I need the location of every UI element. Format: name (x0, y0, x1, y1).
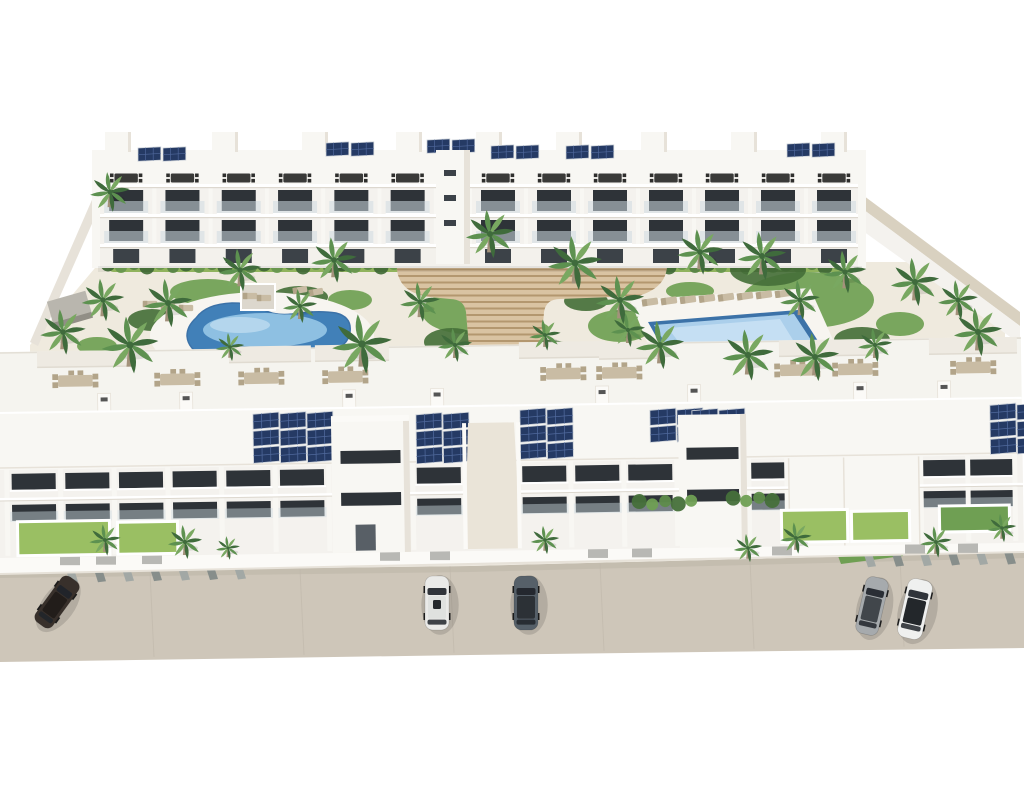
solar-panel (138, 147, 161, 161)
architectural-rendering: Aerial 3D architectural rendering of a w… (0, 0, 1024, 800)
pergola-roof (519, 341, 605, 358)
balcony-glass (160, 231, 204, 244)
rooftop-furniture-set (650, 174, 682, 183)
roof-bulkhead-shade (128, 132, 131, 152)
balcony-glass (521, 504, 569, 515)
rooftop-furniture-set (166, 174, 198, 183)
end-wall-right (858, 150, 866, 268)
roof-bulkhead-shade (664, 132, 667, 152)
balcony-glass (588, 201, 632, 214)
solar-panel (307, 445, 333, 462)
rooftop-furniture-set (482, 174, 514, 183)
roof-bulkhead-shade (419, 132, 422, 152)
roof-bulkhead (731, 132, 757, 152)
pergola-roof (229, 345, 311, 362)
end-wall-left (92, 150, 100, 268)
rooftop-furniture-set (223, 174, 255, 183)
chimney-vent (857, 386, 864, 390)
balcony-glass (812, 201, 856, 214)
balcony-glass (700, 201, 744, 214)
balcony-glass (812, 231, 856, 244)
garden-bed (876, 312, 924, 336)
balcony-glass (476, 201, 520, 214)
rooftop-furniture-set (762, 174, 794, 183)
balcony-glass (644, 201, 688, 214)
solar-panel (416, 430, 442, 447)
ground-floor-window (113, 249, 139, 263)
balcony-glass (532, 201, 576, 214)
balcony-glass (532, 231, 576, 244)
balcony-glass (217, 201, 261, 214)
stair-tower-a (331, 415, 411, 553)
balcony-glass (329, 231, 373, 244)
render-canvas (0, 0, 1024, 800)
balcony-glass (225, 508, 273, 519)
solar-panel (253, 412, 279, 429)
central-walkway (462, 422, 522, 549)
solar-panel (566, 145, 589, 159)
ground-floor-window (169, 249, 195, 263)
chimney-vent (434, 392, 441, 396)
solar-panel (326, 142, 349, 156)
balcony-glass (117, 510, 165, 521)
facade-window (922, 460, 966, 477)
chimney-vent (101, 397, 108, 401)
ground-floor-window (597, 249, 623, 263)
facade-window (280, 469, 324, 486)
car-sunroof (433, 600, 441, 609)
car-windshield (517, 588, 536, 595)
roof-bulkhead-shade (844, 132, 847, 152)
balcony-glass (329, 201, 373, 214)
rooftop-furniture-set (110, 174, 142, 183)
solar-panel (1017, 420, 1024, 437)
facade-window (575, 465, 619, 482)
base-shadow (98, 266, 862, 272)
chimney-vent (599, 390, 606, 394)
balcony-glass (644, 231, 688, 244)
solar-panel (163, 147, 186, 161)
facade-window (969, 459, 1013, 476)
solar-panel (416, 447, 442, 464)
balcony-glass (104, 231, 148, 244)
solar-panel (1017, 403, 1024, 420)
car-windshield (428, 588, 447, 595)
solar-panel (650, 425, 676, 442)
stair-tower-b (678, 414, 748, 548)
facade-window (628, 464, 672, 481)
rooftop-furniture-set (818, 174, 850, 183)
rooftop-furniture-set (594, 174, 626, 183)
roof-bulkhead-shade (754, 132, 757, 152)
central-stair-tower (436, 150, 470, 264)
roof-bulkhead (302, 132, 328, 152)
balcony-glass (278, 507, 326, 518)
parked-car (421, 575, 458, 634)
car-rear-window (517, 620, 536, 625)
facade-window (417, 467, 461, 484)
ground-floor-window (653, 249, 679, 263)
sun-lounger (257, 295, 271, 301)
solar-panel (280, 412, 306, 429)
parked-car (510, 575, 547, 634)
facade-window (12, 473, 56, 490)
car-rear-window (428, 620, 447, 625)
facade-window (173, 471, 217, 488)
balcony-glass (386, 201, 430, 214)
solar-panel (591, 145, 614, 159)
solar-panel (547, 408, 573, 425)
roof-bulkhead (105, 132, 131, 152)
ground-floor-window (282, 249, 308, 263)
solar-panel (990, 420, 1016, 437)
chimney-vent (941, 385, 948, 389)
solar-panel (787, 143, 810, 157)
solar-panel (516, 145, 539, 159)
solar-panel (650, 408, 676, 425)
rooftop-furniture-set (391, 174, 423, 183)
ground-floor-window (395, 249, 421, 263)
solar-panel (812, 143, 835, 157)
roof-bulkhead (212, 132, 238, 152)
facade-window (119, 472, 163, 489)
sun-lounger (243, 293, 257, 299)
balcony-glass (756, 231, 800, 244)
facade-window (65, 472, 109, 489)
roof-bulkhead (396, 132, 422, 152)
solar-panel (547, 425, 573, 442)
facade-window (522, 466, 566, 483)
solar-panel (307, 428, 333, 445)
balcony-glass (273, 201, 317, 214)
solar-panel (990, 437, 1016, 454)
chimney-vent (183, 396, 190, 400)
car-roof (517, 596, 535, 619)
solar-panel (990, 403, 1016, 420)
balcony-glass (574, 503, 622, 514)
balcony-glass (588, 231, 632, 244)
balcony-glass (217, 231, 261, 244)
solar-panel (491, 145, 514, 159)
solar-panel (253, 429, 279, 446)
apartment-row-bottom (0, 335, 1024, 558)
balcony-glass (415, 505, 463, 516)
balcony-glass (160, 201, 204, 214)
chimney-vent (691, 389, 698, 393)
solar-panel (307, 411, 333, 428)
balcony-glass (273, 231, 317, 244)
solar-panel (1017, 437, 1024, 454)
rooftop-furniture-set (706, 174, 738, 183)
roof-bulkheads (105, 132, 847, 152)
solar-panel (351, 142, 374, 156)
rooftop-terraces (92, 150, 866, 188)
balcony-glass (171, 509, 219, 520)
chimney-vent (346, 394, 353, 398)
roof-bulkhead (641, 132, 667, 152)
solar-panel (280, 446, 306, 463)
rooftop-furniture-set (538, 174, 570, 183)
solar-panel (520, 425, 546, 442)
solar-panel (547, 442, 573, 459)
rooftop-furniture-set (279, 174, 311, 183)
solar-panel (520, 442, 546, 459)
balcony-glass (386, 231, 430, 244)
solar-panel (416, 413, 442, 430)
roof-bulkhead-shade (235, 132, 238, 152)
facade-window (226, 470, 270, 487)
solar-panel (253, 446, 279, 463)
solar-panel (520, 408, 546, 425)
balcony-glass (756, 201, 800, 214)
rooftop-furniture-set (335, 174, 367, 183)
solar-panel (280, 429, 306, 446)
facade-window (746, 462, 790, 479)
